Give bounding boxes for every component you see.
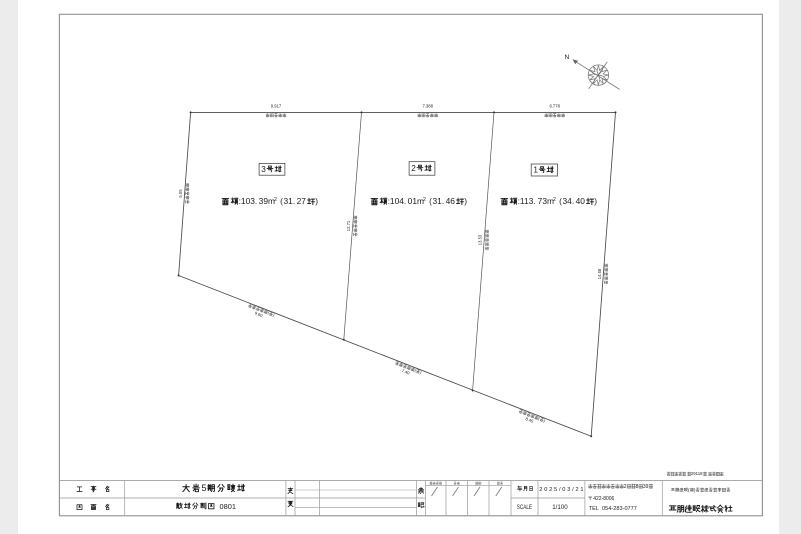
svg-text:40: 40 [576, 196, 586, 206]
svg-text::113.: :113. [518, 196, 536, 206]
svg-text:5.05: 5.05 [178, 189, 183, 198]
svg-text:31.: 31. [284, 196, 296, 206]
svg-text:SCALE: SCALE [517, 504, 532, 511]
svg-text:46: 46 [446, 196, 456, 206]
svg-text:2: 2 [553, 197, 556, 203]
svg-text:TEL 054-283-0777: TEL 054-283-0777 [589, 506, 637, 512]
svg-text:3: 3 [261, 165, 266, 174]
svg-text:5: 5 [201, 483, 206, 493]
svg-text:): ) [594, 196, 597, 206]
svg-text:2: 2 [423, 197, 426, 203]
svg-text:0801: 0801 [220, 502, 236, 511]
svg-text:): ) [464, 196, 467, 206]
svg-text:N: N [565, 54, 570, 61]
svg-text:): ) [315, 196, 318, 206]
svg-text:29118: 29118 [691, 471, 703, 476]
svg-text:39m: 39m [259, 196, 275, 206]
svg-text:31.: 31. [433, 196, 445, 206]
svg-text:12.71: 12.71 [346, 220, 351, 231]
svg-text:13.53: 13.53 [478, 234, 483, 245]
svg-text:34.: 34. [563, 196, 575, 206]
svg-text:27: 27 [297, 196, 307, 206]
svg-text:1: 1 [533, 165, 538, 174]
svg-text:422-8006: 422-8006 [593, 496, 614, 502]
svg-text:7.388: 7.388 [422, 104, 433, 109]
svg-text:6.778: 6.778 [549, 104, 560, 109]
svg-text:9.917: 9.917 [271, 104, 282, 109]
svg-text:73m: 73m [538, 196, 554, 206]
svg-text:14.58: 14.58 [597, 268, 602, 279]
svg-text:39: 39 [643, 484, 649, 490]
svg-text:2025/03/21: 2025/03/21 [539, 487, 585, 493]
svg-text::104.: :104. [388, 196, 407, 206]
svg-text:2: 2 [411, 164, 416, 173]
svg-text:8: 8 [636, 484, 639, 490]
svg-text:1/100: 1/100 [552, 504, 568, 511]
svg-text:2: 2 [274, 197, 277, 203]
svg-text:2: 2 [624, 484, 627, 490]
svg-text::103.: :103. [239, 196, 258, 206]
svg-text:01m: 01m [408, 196, 424, 206]
